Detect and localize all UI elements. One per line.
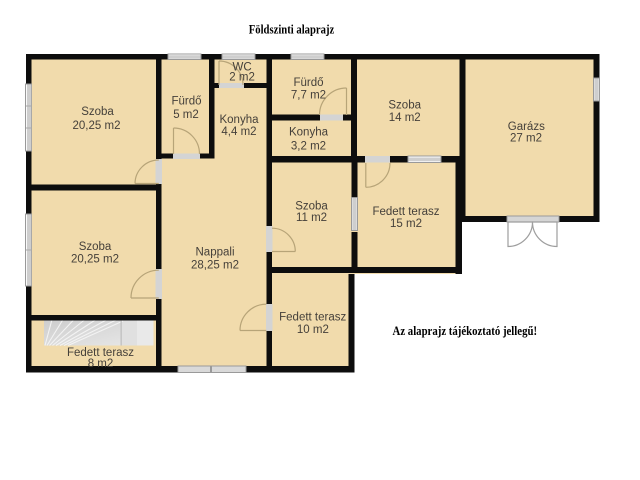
svg-text:Szoba: Szoba (81, 106, 114, 118)
svg-text:Konyha: Konyha (289, 127, 329, 139)
svg-text:20,25 m2: 20,25 m2 (73, 120, 121, 132)
svg-text:10 m2: 10 m2 (297, 324, 329, 336)
svg-text:Földszinti alaprajz: Földszinti alaprajz (249, 22, 335, 37)
svg-text:Fürdő: Fürdő (293, 77, 323, 89)
svg-text:15 m2: 15 m2 (390, 218, 422, 230)
svg-text:Garázs: Garázs (508, 121, 545, 133)
svg-text:4,4 m2: 4,4 m2 (221, 126, 256, 138)
svg-text:20,25 m2: 20,25 m2 (71, 254, 119, 266)
svg-text:Nappali: Nappali (196, 247, 235, 259)
svg-text:Fedett terasz: Fedett terasz (372, 206, 439, 218)
svg-text:27 m2: 27 m2 (510, 133, 542, 145)
svg-text:8 m2: 8 m2 (88, 358, 114, 370)
svg-text:14 m2: 14 m2 (389, 112, 421, 124)
svg-text:Fedett terasz: Fedett terasz (279, 312, 346, 324)
svg-text:Az alaprajz tájékoztató jelleg: Az alaprajz tájékoztató jellegű! (393, 323, 538, 338)
svg-text:7,7 m2: 7,7 m2 (291, 90, 326, 102)
svg-text:Szoba: Szoba (388, 100, 421, 112)
svg-text:11 m2: 11 m2 (296, 212, 327, 224)
svg-text:Konyha: Konyha (219, 114, 259, 126)
svg-text:Szoba: Szoba (295, 201, 328, 213)
svg-text:28,25 m2: 28,25 m2 (191, 260, 239, 272)
svg-text:Szoba: Szoba (79, 241, 112, 253)
svg-text:3,2 m2: 3,2 m2 (291, 141, 326, 153)
svg-text:Fürdő: Fürdő (171, 96, 201, 108)
svg-text:2 m2: 2 m2 (229, 72, 255, 84)
svg-text:5 m2: 5 m2 (173, 109, 199, 121)
